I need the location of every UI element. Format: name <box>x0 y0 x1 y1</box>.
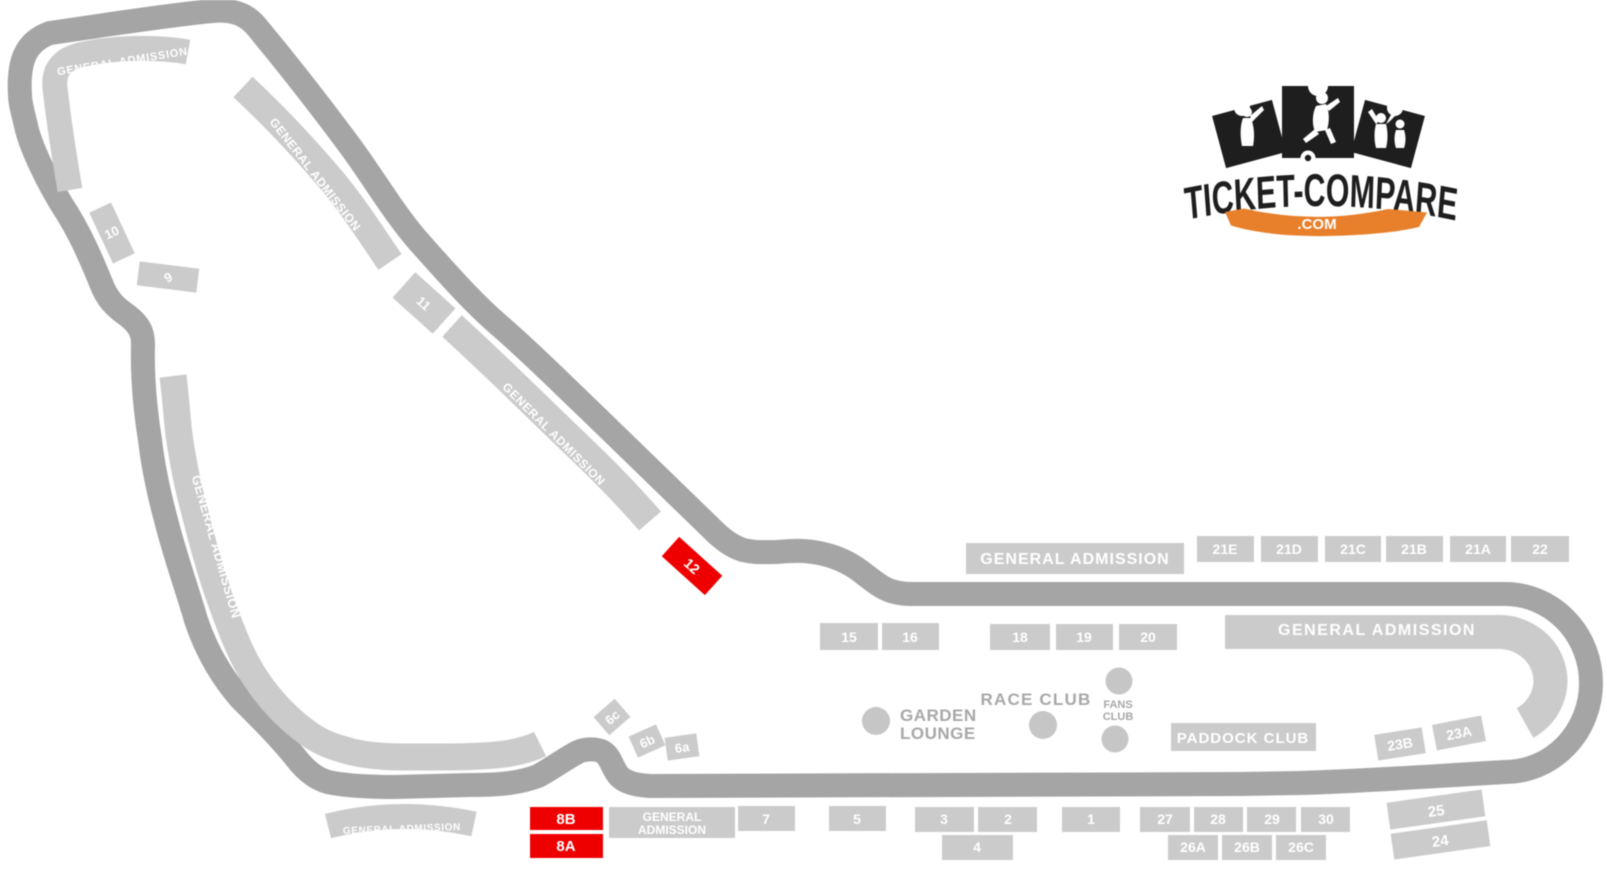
svg-text:.COM: .COM <box>1297 216 1336 233</box>
svg-text:21A: 21A <box>1465 541 1491 557</box>
svg-text:22: 22 <box>1532 541 1548 557</box>
svg-text:20: 20 <box>1140 629 1156 645</box>
svg-text:21E: 21E <box>1213 541 1238 557</box>
svg-text:25: 25 <box>1427 802 1446 821</box>
svg-text:8B: 8B <box>556 811 575 828</box>
svg-text:ADMISSION: ADMISSION <box>638 823 706 837</box>
svg-text:PADDOCK CLUB: PADDOCK CLUB <box>1177 730 1310 747</box>
svg-text:4: 4 <box>973 839 981 855</box>
svg-text:CLUB: CLUB <box>1103 711 1134 723</box>
svg-text:21C: 21C <box>1340 541 1366 557</box>
svg-text:21B: 21B <box>1401 541 1427 557</box>
svg-text:GENERAL ADMISSION: GENERAL ADMISSION <box>1278 622 1476 639</box>
svg-text:7: 7 <box>762 811 770 827</box>
svg-text:18: 18 <box>1012 629 1028 645</box>
svg-text:6a: 6a <box>674 739 691 756</box>
svg-text:GENERAL: GENERAL <box>643 810 702 824</box>
svg-text:LOUNGE: LOUNGE <box>900 724 976 743</box>
svg-text:19: 19 <box>1076 629 1092 645</box>
svg-text:28: 28 <box>1210 811 1226 827</box>
svg-text:16: 16 <box>902 629 918 645</box>
svg-text:26A: 26A <box>1180 839 1206 855</box>
svg-text:21D: 21D <box>1276 541 1302 557</box>
svg-text:26C: 26C <box>1288 839 1314 855</box>
svg-text:1: 1 <box>1087 811 1095 827</box>
svg-text:8A: 8A <box>556 838 575 855</box>
svg-text:29: 29 <box>1264 811 1280 827</box>
svg-text:GARDEN: GARDEN <box>900 706 977 725</box>
svg-text:GENERAL ADMISSION: GENERAL ADMISSION <box>980 551 1169 568</box>
svg-text:FANS: FANS <box>1103 699 1132 711</box>
svg-text:2: 2 <box>1004 811 1012 827</box>
svg-text:3: 3 <box>940 811 948 827</box>
svg-text:26B: 26B <box>1234 839 1260 855</box>
svg-text:15: 15 <box>841 629 857 645</box>
svg-text:30: 30 <box>1318 811 1334 827</box>
svg-text:24: 24 <box>1431 832 1451 851</box>
svg-text:27: 27 <box>1157 811 1173 827</box>
svg-text:5: 5 <box>853 811 861 827</box>
svg-text:RACE CLUB: RACE CLUB <box>981 690 1092 709</box>
